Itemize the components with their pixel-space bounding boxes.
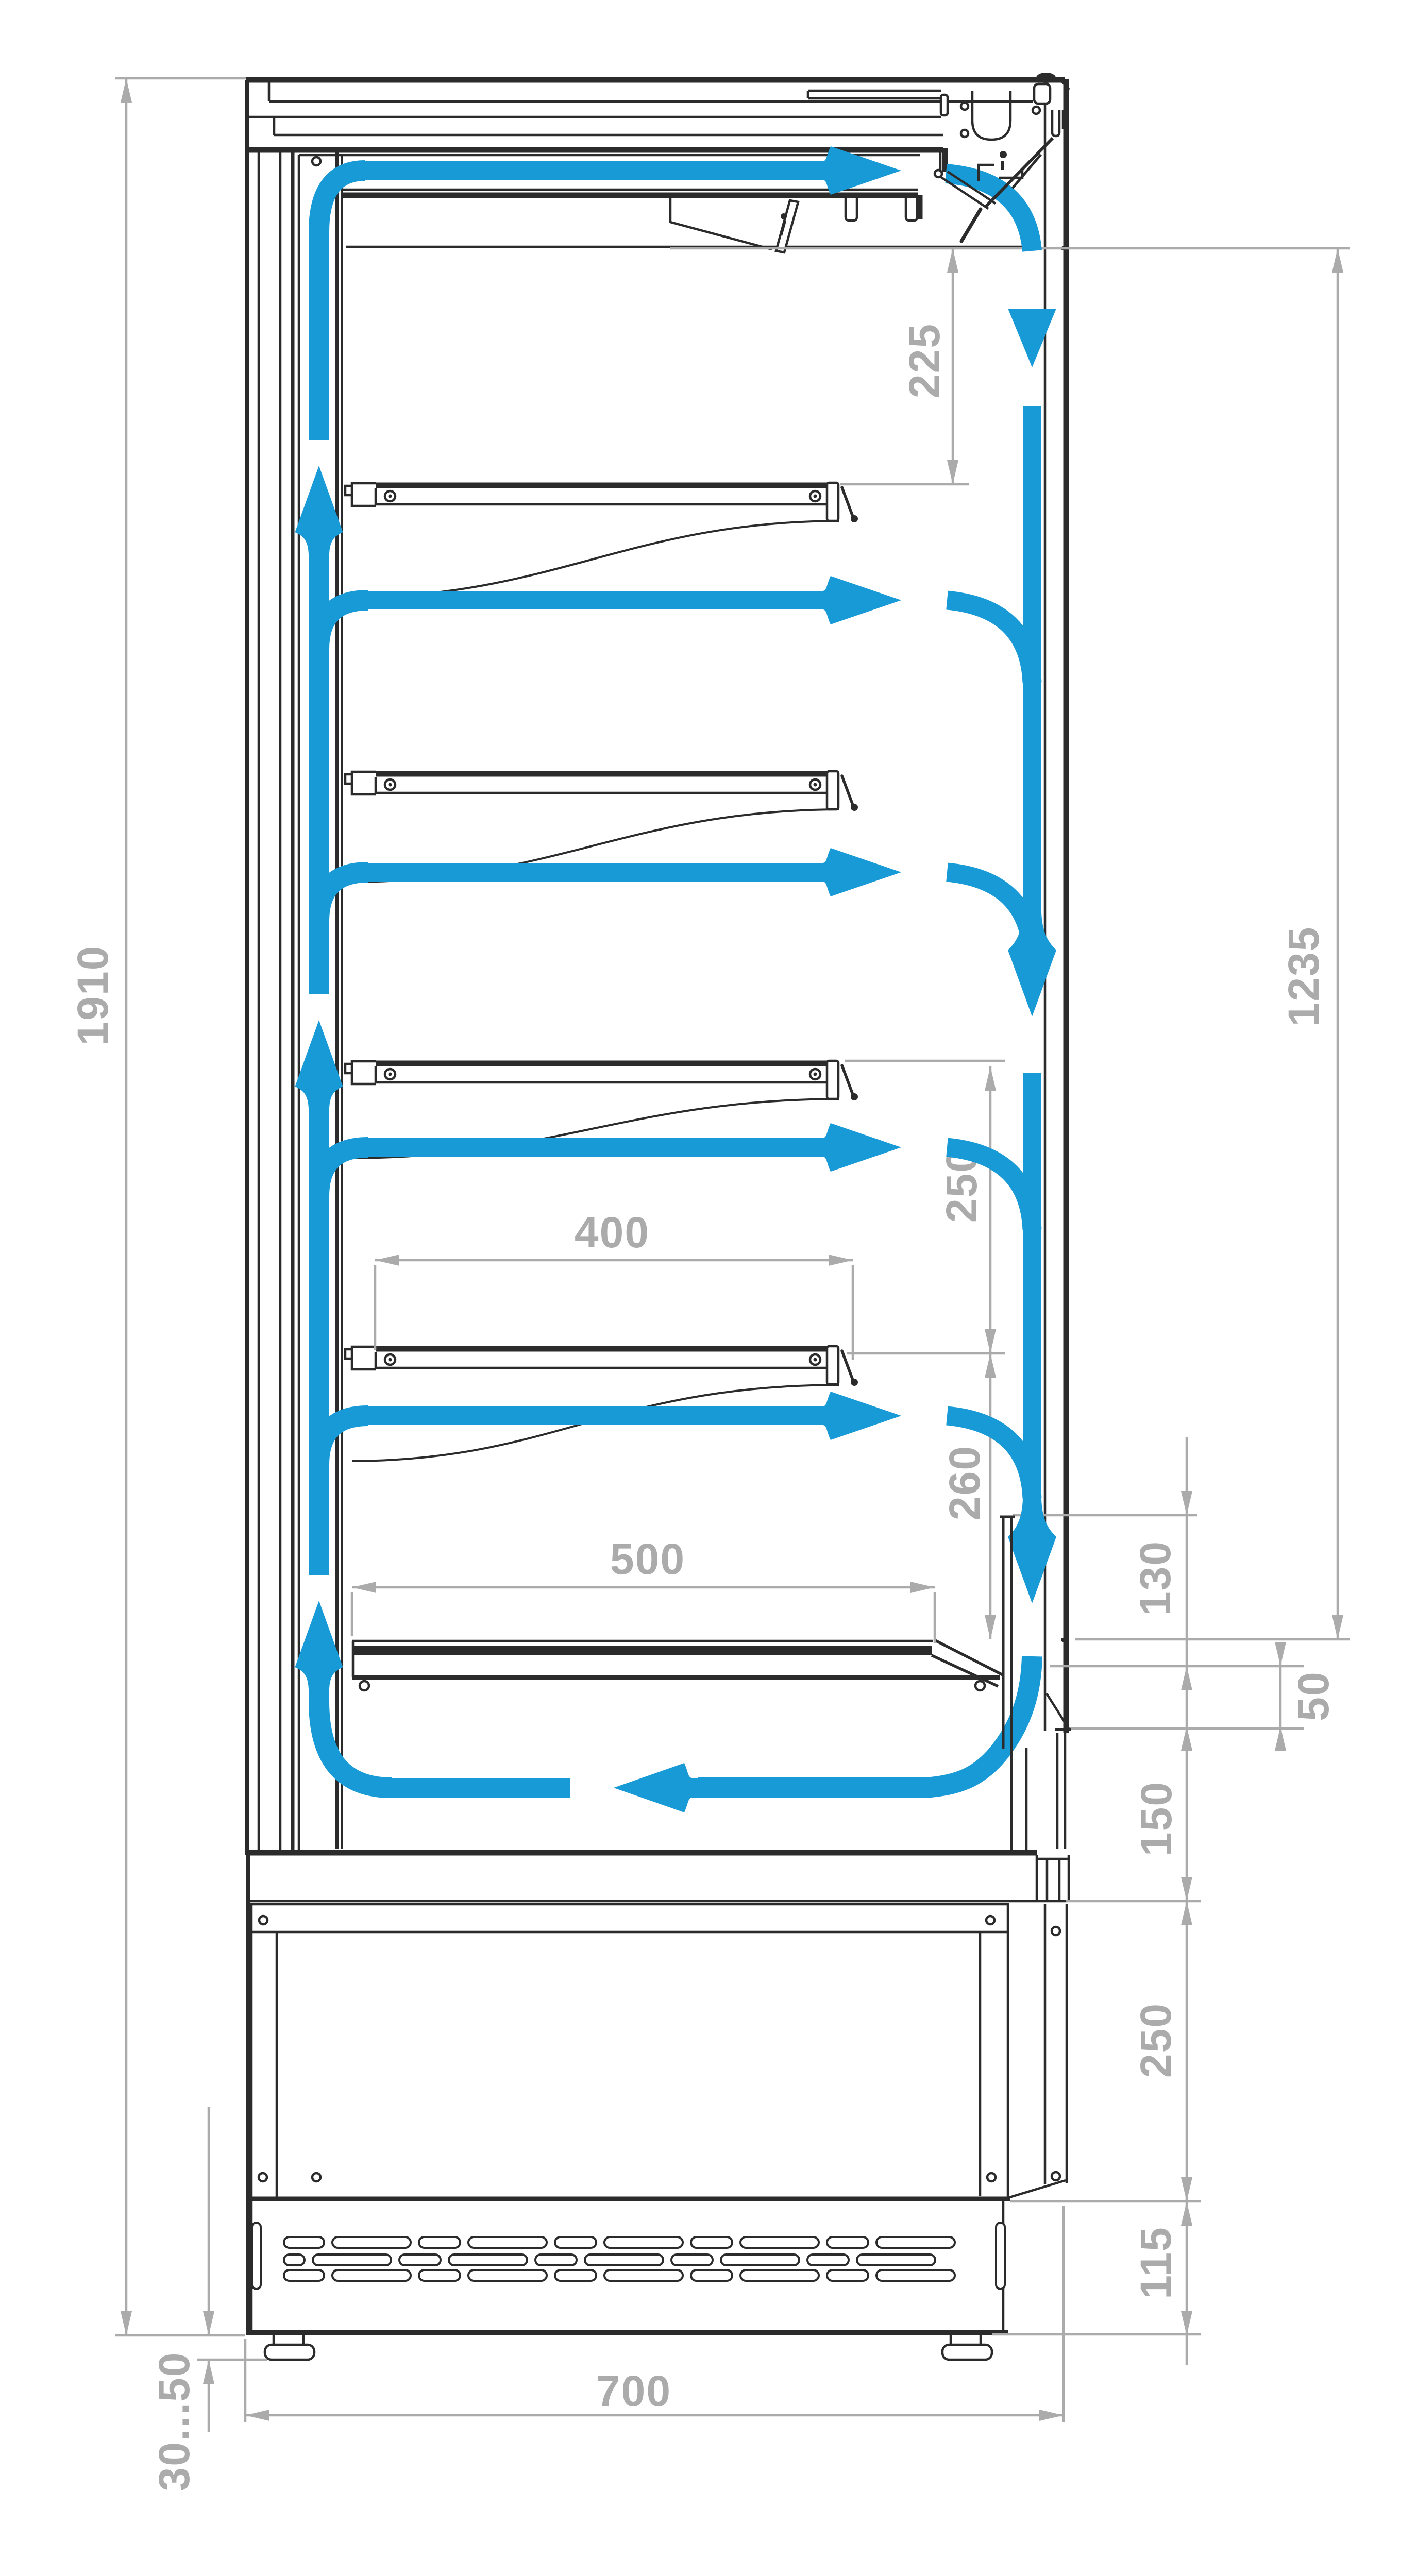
svg-text:30...50: 30...50 bbox=[150, 2352, 198, 2492]
svg-text:400: 400 bbox=[575, 1208, 650, 1257]
svg-text:150: 150 bbox=[1132, 1781, 1180, 1856]
svg-text:500: 500 bbox=[610, 1535, 685, 1583]
svg-text:1235: 1235 bbox=[1279, 926, 1328, 1027]
svg-text:260: 260 bbox=[940, 1445, 989, 1520]
svg-text:50: 50 bbox=[1289, 1671, 1338, 1721]
svg-text:130: 130 bbox=[1131, 1540, 1179, 1616]
svg-text:115: 115 bbox=[1132, 2226, 1180, 2299]
svg-text:700: 700 bbox=[596, 2367, 671, 2415]
svg-text:1910: 1910 bbox=[69, 945, 117, 1046]
svg-text:225: 225 bbox=[900, 323, 949, 398]
svg-text:250: 250 bbox=[1132, 2003, 1180, 2078]
